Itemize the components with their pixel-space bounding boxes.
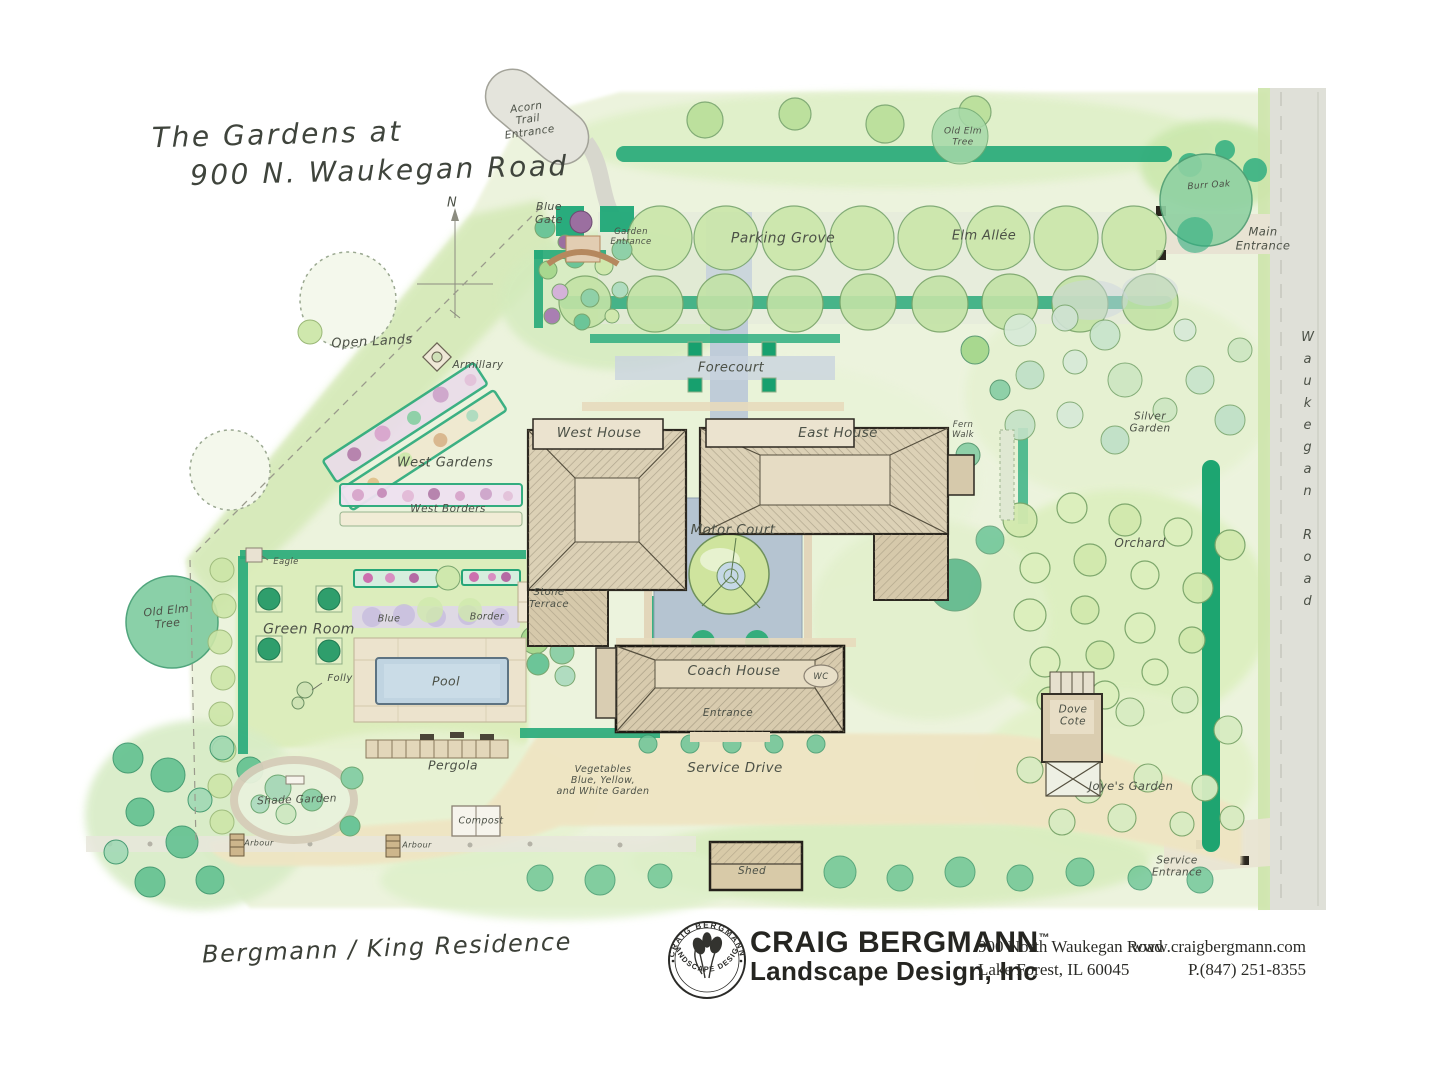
old-elm-tree-left: [126, 576, 218, 668]
label-waukegan-road: Waukegan Road: [1300, 330, 1315, 616]
old-elm-tree-top: [932, 108, 988, 164]
pool-area: [354, 638, 526, 722]
wc-structure: [804, 665, 838, 687]
company-contact: www.craigbergmann.comP.(847) 251-8355: [1131, 936, 1306, 982]
waukegan-road: [1258, 88, 1326, 910]
compost-structure: [452, 806, 500, 836]
plan-title-line1: The Gardens at: [152, 115, 403, 155]
coach-house-building: [596, 646, 844, 742]
dove-cote-structure: [1042, 672, 1102, 796]
company-phone: P.(847) 251-8355: [1188, 960, 1306, 979]
company-website: www.craigbergmann.com: [1131, 937, 1306, 956]
fern-walk-path: [1000, 430, 1014, 520]
west-borders-beds: [340, 484, 522, 526]
garden-plan-page: CRAIG BERGMANN LANDSCAPE DESIGN The Gard…: [0, 0, 1440, 1080]
shade-garden-area: [234, 760, 363, 840]
shed-structure: [710, 842, 802, 890]
